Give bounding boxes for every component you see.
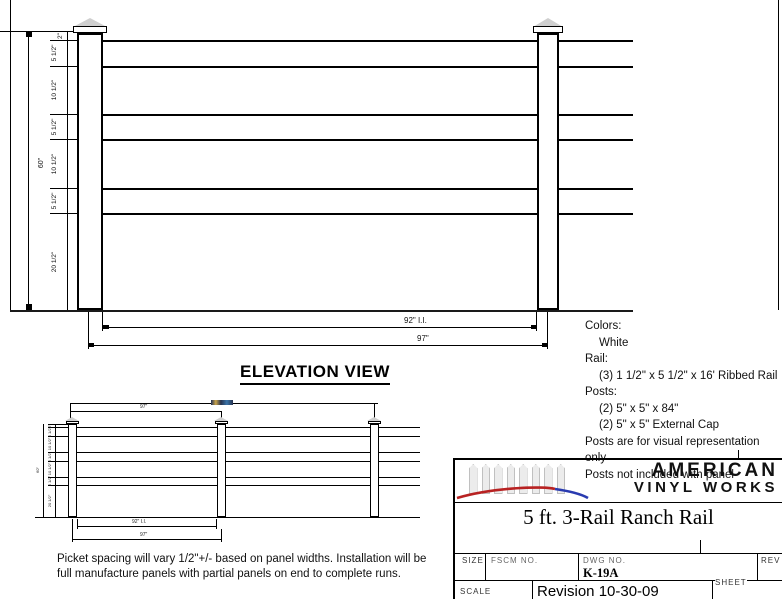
arrow-right-icon: [531, 325, 537, 329]
sheet-label: SHEET: [715, 578, 747, 587]
rail-line: [103, 188, 537, 190]
sv-rail-line: [379, 436, 420, 437]
arrow-right-icon: [542, 343, 548, 347]
sv-panel-dim-line: [70, 411, 222, 412]
note-line: (2) 5" x 5" External Cap: [585, 417, 782, 434]
segment-dimension-label: 5 1/2": [52, 118, 58, 135]
sv-rail-line: [226, 452, 370, 453]
segment-dimension-label: 20 1/2": [52, 251, 58, 271]
tb-divider: [712, 580, 713, 599]
rail-line: [103, 40, 537, 42]
rail-line: [103, 114, 537, 116]
size-label: SIZE: [462, 556, 484, 565]
brand-swoosh-icon: [455, 484, 589, 500]
product-title: 5 ft. 3-Rail Ranch Rail: [455, 505, 782, 530]
segment-tick: [50, 213, 77, 214]
sv-height-dim-line: [43, 424, 44, 517]
arrow-up-icon: [26, 31, 32, 37]
sheet-border-right: [778, 0, 779, 310]
revision-date: Revision 10-30-09: [537, 583, 659, 599]
sv-bouter-ext-right: [221, 529, 222, 542]
post-cap: [533, 26, 563, 33]
brand-logo: AMERICAN VINYL WORKS: [634, 462, 778, 495]
sv-bouter-dim-line: [72, 539, 222, 540]
segment-tick: [50, 114, 77, 115]
segment-dimension-label: 10 1/2": [52, 80, 58, 100]
sv-rail-line: [226, 461, 370, 462]
sv-segment-dimension-label: 5 1/2": [48, 426, 52, 436]
inner-width-dimension-line: [103, 327, 537, 328]
segment-tick: [50, 188, 77, 189]
post-cap: [73, 26, 107, 33]
sv-rail-line: [77, 452, 217, 453]
ground-line: [10, 310, 633, 312]
sheet-border-left: [10, 0, 11, 310]
note-line: (2) 5" x 5" x 84": [585, 401, 782, 418]
rail-line: [103, 66, 537, 68]
note-line: Colors:: [585, 318, 782, 335]
tb-divider: [578, 553, 579, 580]
rail-line: [103, 213, 537, 215]
outer-width-dimension-line: [88, 345, 548, 346]
rail-line: [559, 188, 633, 190]
sv-rail-line: [77, 461, 217, 462]
outer-width-label: 97": [417, 334, 429, 343]
sv-bouter-width-label: 97": [140, 533, 147, 538]
sv-rail-line: [379, 477, 420, 478]
segment-dimension-label: 5 1/2": [52, 45, 58, 62]
fence-post: [537, 33, 559, 310]
sv-rail-line: [226, 427, 370, 428]
sv-segment-dimension-label: 5 1/2": [48, 451, 52, 461]
height-dimension-line: [28, 31, 29, 310]
segment-chain-line: [67, 31, 68, 310]
sv-rail-line: [379, 452, 420, 453]
sv-fence-post: [68, 424, 77, 517]
tb-divider: [485, 553, 486, 580]
picket-spacing-note: Picket spacing will vary 1/2"+/- based o…: [57, 552, 447, 582]
rail-line: [559, 40, 633, 42]
sv-rail-line: [226, 436, 370, 437]
segment-dimension-label: 5 1/2": [52, 192, 58, 209]
rail-line: [559, 114, 633, 116]
sv-segment-dimension-label: 5 1/2": [48, 476, 52, 486]
elevation-view-heading: ELEVATION VIEW: [240, 362, 390, 385]
sv-rail-line: [226, 477, 370, 478]
segment-tick: [50, 66, 77, 67]
segment-tick: [50, 139, 77, 140]
title-block: AMERICAN VINYL WORKS 5 ft. 3-Rail Ranch …: [453, 458, 782, 599]
sv-rail-line: [379, 427, 420, 428]
sv-rail-line: [77, 436, 217, 437]
arrow-left-icon: [88, 343, 94, 347]
drawing-sheet: 60" 2"5 1/2"10 1/2"5 1/2"10 1/2"5 1/2"20…: [0, 0, 782, 599]
sv-segment-dimension-label: 20 1/2": [48, 495, 52, 508]
note-line: Posts:: [585, 384, 782, 401]
sv-binner-ext-right: [216, 519, 217, 529]
brand-name-line2: VINYL WORKS: [634, 480, 778, 495]
sv-ground-line: [35, 517, 420, 518]
fscm-label: FSCM NO.: [491, 556, 538, 565]
sv-panel-width-label: 97": [140, 405, 147, 410]
sv-overall-width-label-highlighted: [211, 400, 233, 405]
arrow-left-icon: [103, 325, 109, 329]
drawing-number: K-19A: [583, 566, 618, 581]
rev-label: REV: [761, 556, 780, 565]
sv-rail-line: [77, 485, 217, 486]
sv-chain-line: [55, 424, 56, 517]
tb-divider: [757, 553, 758, 580]
segment-dimension-label: 2": [58, 33, 64, 39]
tb-line: [455, 502, 782, 503]
brand-name-line1: AMERICAN: [634, 462, 778, 480]
sv-rail-line: [226, 485, 370, 486]
dwg-label: DWG NO.: [583, 556, 626, 565]
tb-divider: [532, 580, 533, 599]
sv-height-label: 60": [36, 467, 40, 473]
rail-line: [559, 139, 633, 141]
sv-segment-dimension-label: 10 1/2": [48, 463, 52, 476]
rail-line: [103, 139, 537, 141]
sv-binner-dim-line: [77, 526, 217, 527]
sv-rail-line: [379, 461, 420, 462]
scale-label: SCALE: [460, 587, 491, 596]
segment-tick: [50, 40, 77, 41]
rail-line: [559, 66, 633, 68]
sv-rail-line: [77, 427, 217, 428]
sv-rail-line: [379, 485, 420, 486]
tb-line: [455, 553, 782, 554]
rail-line: [559, 213, 633, 215]
height-dimension-label: 60": [39, 158, 45, 168]
note-line: (3) 1 1/2" x 5 1/2" x 16' Ribbed Rail: [585, 368, 782, 385]
inner-width-label: 92" I.I.: [404, 316, 427, 325]
sv-binner-ext-left: [77, 519, 78, 529]
sv-binner-width-label: 92" I.I.: [132, 520, 146, 525]
stray-tick-1: [738, 450, 739, 458]
note-line: White: [585, 335, 782, 352]
fence-post: [77, 33, 103, 310]
sv-fence-post: [370, 424, 379, 517]
segment-dimension-label: 10 1/2": [52, 153, 58, 173]
sv-segment-dimension-label: 10 1/2": [48, 438, 52, 451]
note-line: Rail:: [585, 351, 782, 368]
sv-rail-line: [77, 477, 217, 478]
sv-fence-post: [217, 424, 226, 517]
